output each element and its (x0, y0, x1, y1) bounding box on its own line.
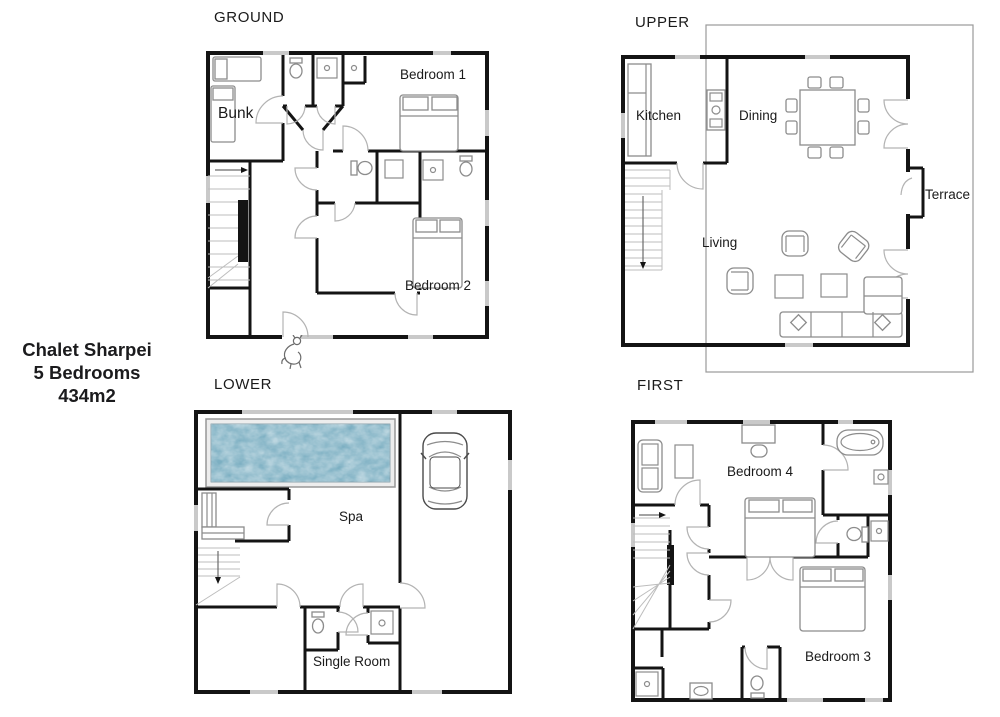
ground-stairs-icon (208, 167, 250, 288)
first-stairs-icon (633, 512, 670, 629)
upper-floor: UPPER (615, 8, 1000, 378)
side-table-icon (675, 445, 693, 478)
first-bed4-icon (745, 498, 815, 557)
lower-floor: LOWER (190, 372, 520, 717)
room-label-single-room: Single Room (313, 654, 390, 669)
ground-floor-plan (205, 48, 500, 368)
coffee-table-icon (775, 274, 847, 298)
dining-table-icon (786, 77, 869, 158)
room-label-bedroom2: Bedroom 2 (405, 278, 471, 293)
car-icon (421, 433, 469, 509)
sofa-icon (780, 277, 902, 337)
ground-floor: GROUND (190, 5, 510, 370)
dog-figure (276, 335, 310, 369)
upper-stairs-icon (625, 170, 670, 270)
room-label-bedroom3: Bedroom 3 (805, 649, 871, 664)
room-label-bunk: Bunk (218, 105, 253, 123)
lower-shower-icon (371, 611, 393, 634)
room-label-terrace: Terrace (925, 187, 970, 202)
armchair-icon (727, 229, 872, 294)
ground-bed1-icon (400, 95, 458, 151)
chalet-name: Chalet Sharpei (8, 338, 166, 361)
first-floor-label: FIRST (637, 377, 683, 394)
room-label-dining: Dining (739, 108, 777, 123)
swimming-pool (206, 419, 395, 487)
room-label-living: Living (702, 235, 737, 250)
first-floor: FIRST (625, 372, 920, 717)
sauna-bench-icon (202, 493, 244, 539)
first-floor-plan (625, 415, 915, 715)
ground-bunk-bed-icon (211, 57, 261, 142)
desk-icon (742, 425, 775, 457)
ground-floor-label: GROUND (214, 9, 284, 26)
bathtub-icon (837, 430, 883, 455)
room-label-spa: Spa (339, 509, 363, 524)
first-sofa-icon (638, 440, 662, 492)
chalet-bedrooms: 5 Bedrooms (8, 361, 166, 384)
room-label-bedroom1: Bedroom 1 (400, 67, 466, 82)
chalet-area: 434m2 (8, 384, 166, 407)
lower-toilet-icon (312, 612, 324, 633)
chalet-title: Chalet Sharpei 5 Bedrooms 434m2 (8, 338, 166, 407)
stove-icon (707, 90, 725, 130)
room-label-bedroom4: Bedroom 4 (727, 464, 793, 479)
lower-stairs-icon (196, 548, 240, 605)
first-bed3-icon (800, 567, 865, 631)
lower-floor-label: LOWER (214, 376, 272, 393)
room-label-kitchen: Kitchen (636, 108, 681, 123)
